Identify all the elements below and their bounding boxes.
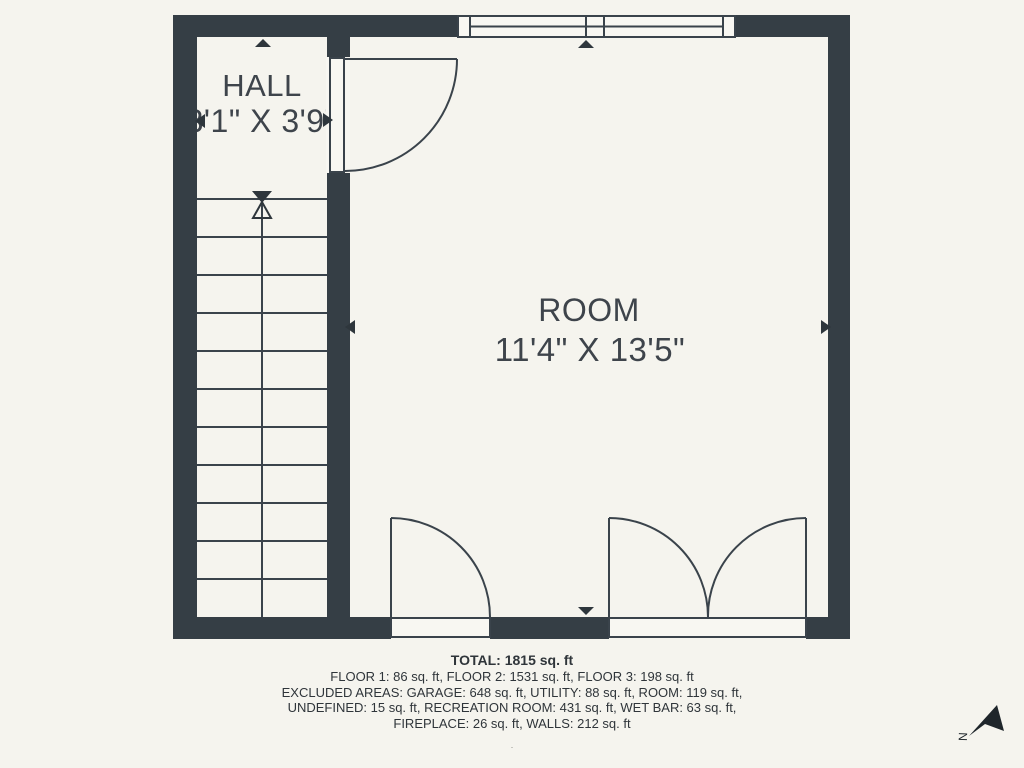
compass: N	[0, 0, 1024, 768]
north-label: N	[956, 732, 970, 741]
north-arrow-icon	[969, 705, 1004, 736]
floorplan-page: HALL 3'1" X 3'9" ROOM 11'4" X 13'5"	[0, 0, 1024, 768]
